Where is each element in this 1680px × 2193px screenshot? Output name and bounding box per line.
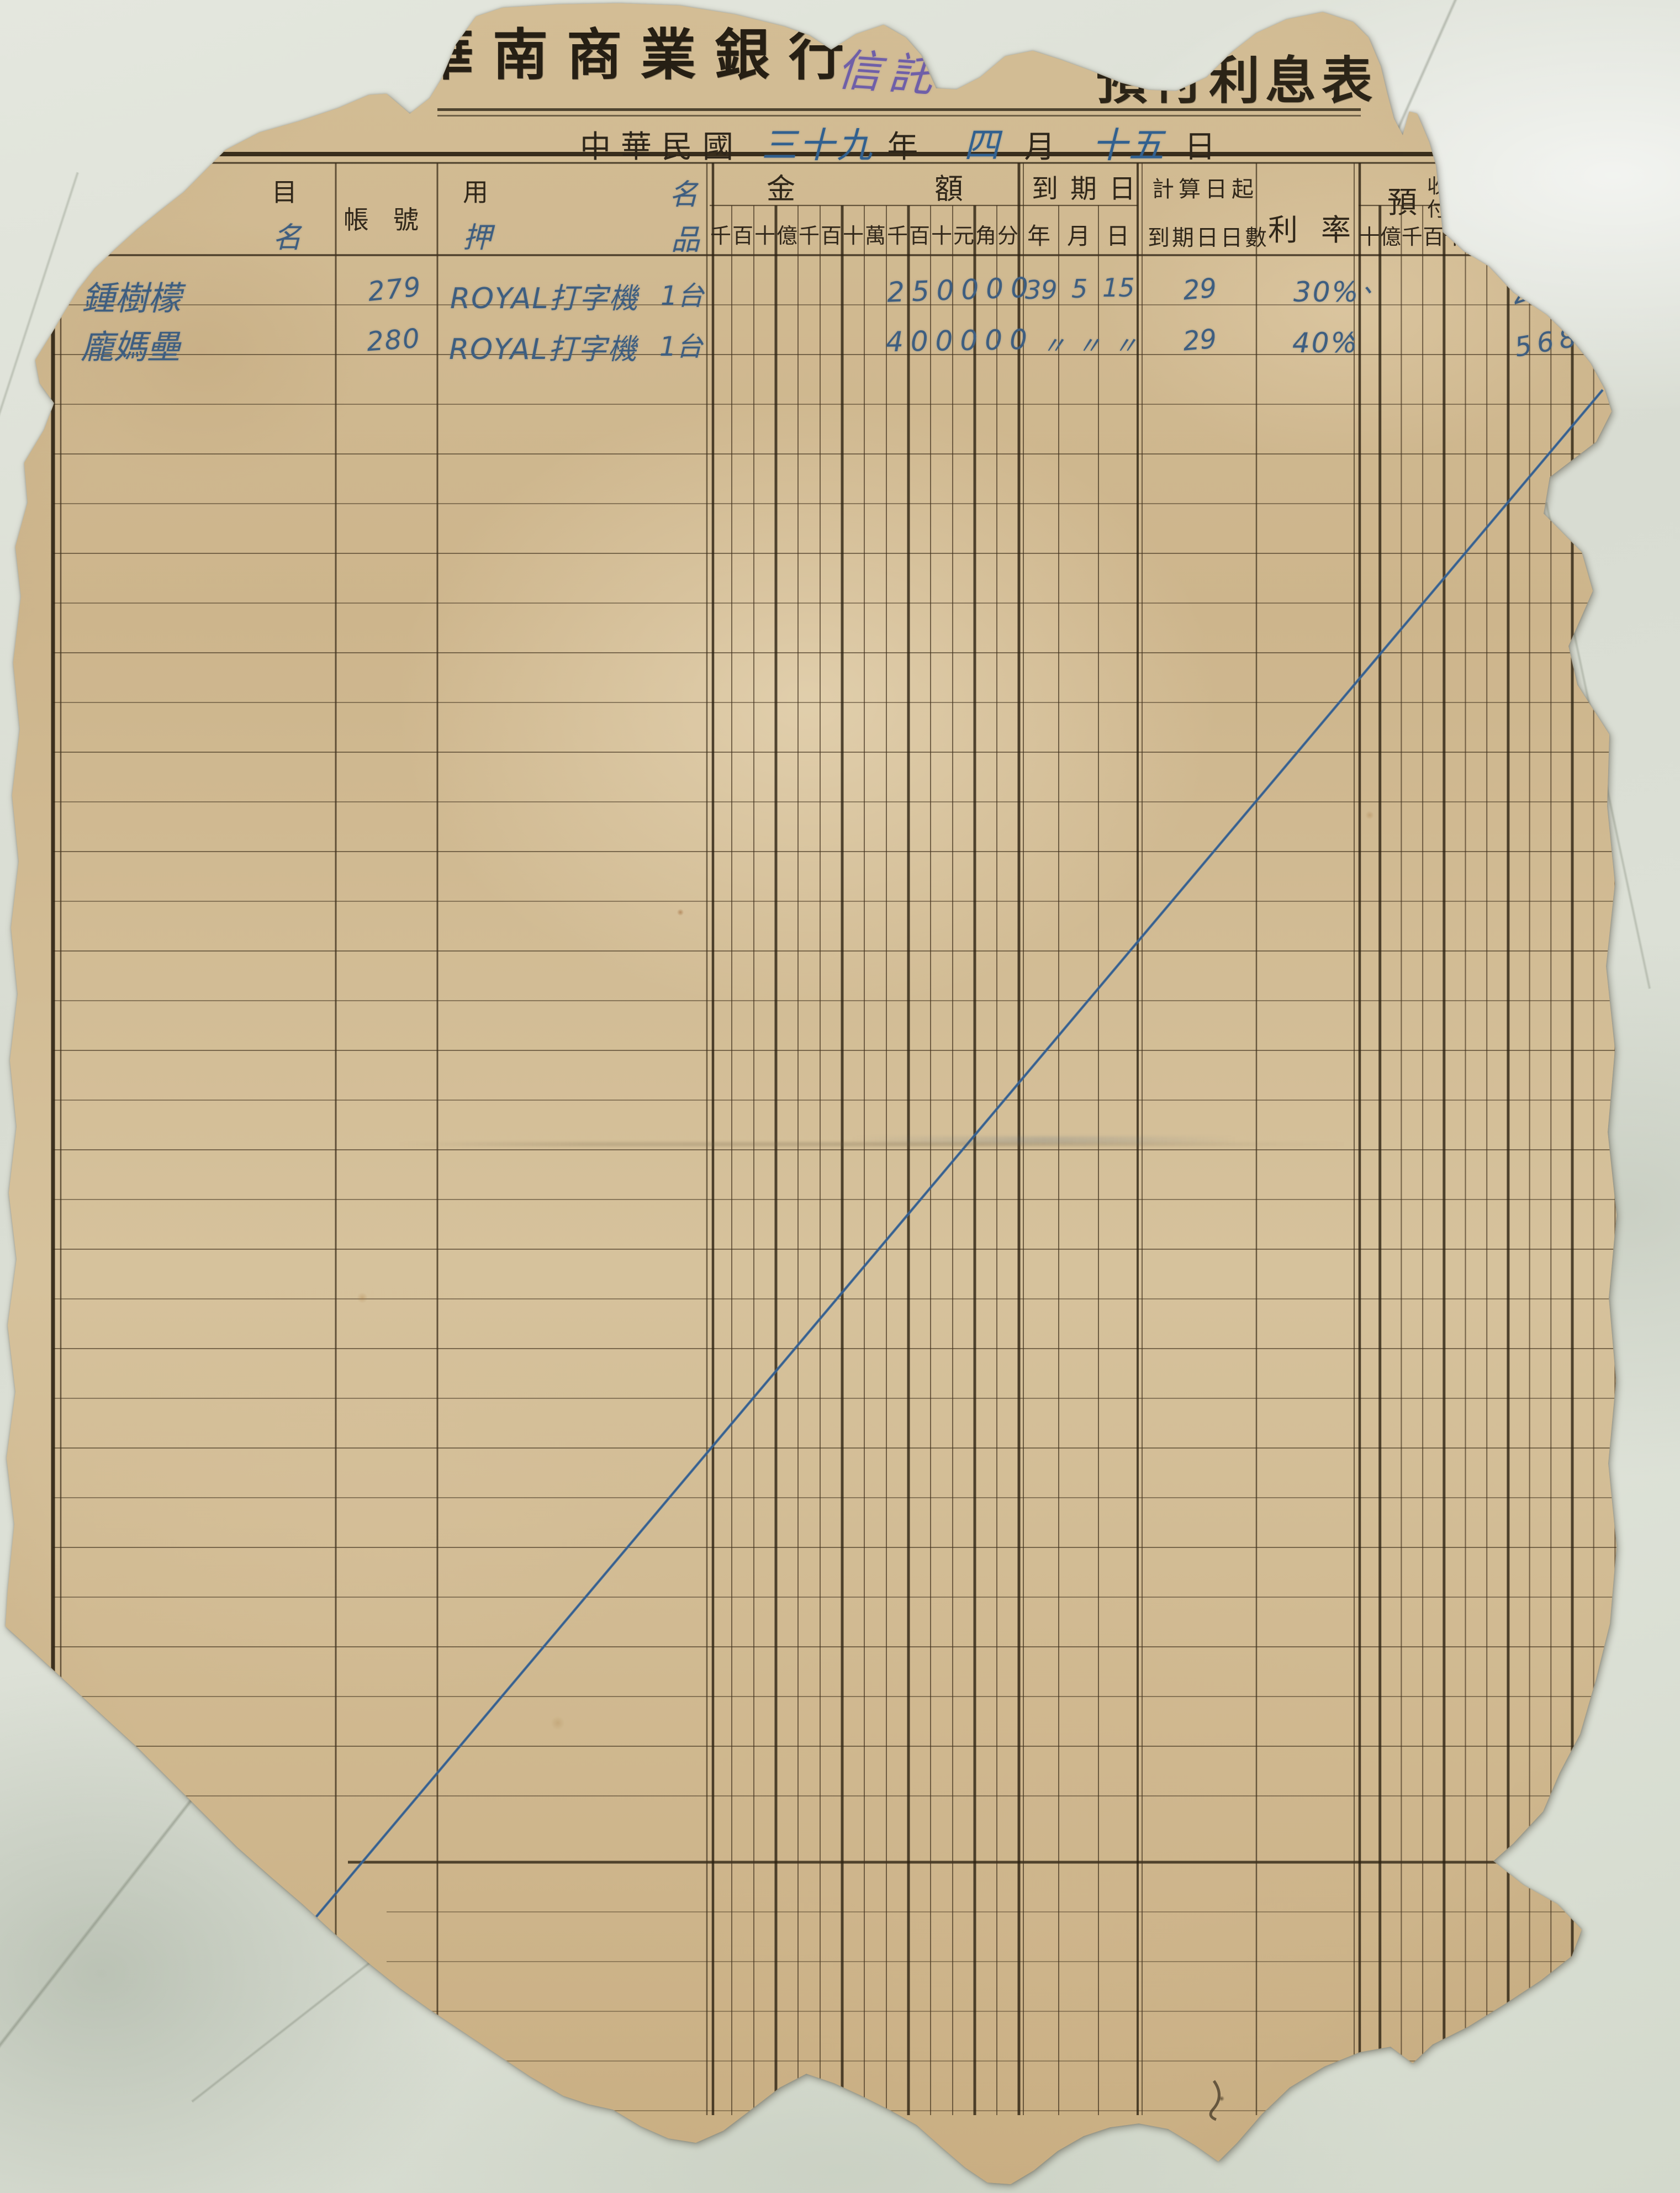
document: 華南商業銀行 信託 預付利息表 中華民國 三十九 年 四 月 十五 日 目 名 …: [0, 0, 1680, 2193]
amount-unit-label: 千: [709, 219, 733, 249]
amount-unit-label: 百: [731, 219, 755, 249]
prepaid-unit-label: 億: [1378, 220, 1403, 250]
amount-unit-label: 萬: [863, 219, 887, 249]
ledger-sheet: 華南商業銀行 信託 預付利息表 中華民國 三十九 年 四 月 十五 日 目 名 …: [0, 0, 1680, 2193]
prepaid-interest-label: 利: [1456, 178, 1486, 221]
amount-unit-label: 十: [929, 219, 954, 249]
scanned-page: { "header": { "bank_name": "華南商業銀行", "tr…: [0, 0, 1680, 2193]
amount-unit-label: 元: [952, 219, 976, 249]
amount-unit-label: 千: [797, 219, 821, 249]
amount-unit-label: 億: [775, 219, 799, 249]
prepaid-unit-label: 十: [1357, 220, 1381, 250]
prepaid-unit-label: 千: [1400, 220, 1424, 250]
amount-unit-label: 千: [885, 219, 910, 249]
prepaid-unit-label: 萬: [1464, 220, 1488, 250]
prepaid-unit-label: 千: [1486, 220, 1510, 250]
amount-unit-label: 分: [996, 219, 1020, 249]
amount-unit-label: 十: [753, 219, 777, 249]
amount-unit-label: 百: [907, 219, 932, 249]
due-unit-label: 月: [1066, 218, 1091, 251]
amount-unit-label: 百: [819, 219, 843, 249]
prepaid-unit-label: 十: [1443, 220, 1467, 250]
stains: [0, 0, 1680, 2193]
prepaid-unit-label: 百: [1421, 220, 1445, 250]
amount-unit-label: 角: [974, 219, 998, 249]
due-unit-label: 年: [1027, 218, 1051, 251]
due-unit-label: 日: [1106, 218, 1130, 251]
amount-unit-label: 十: [841, 219, 865, 249]
